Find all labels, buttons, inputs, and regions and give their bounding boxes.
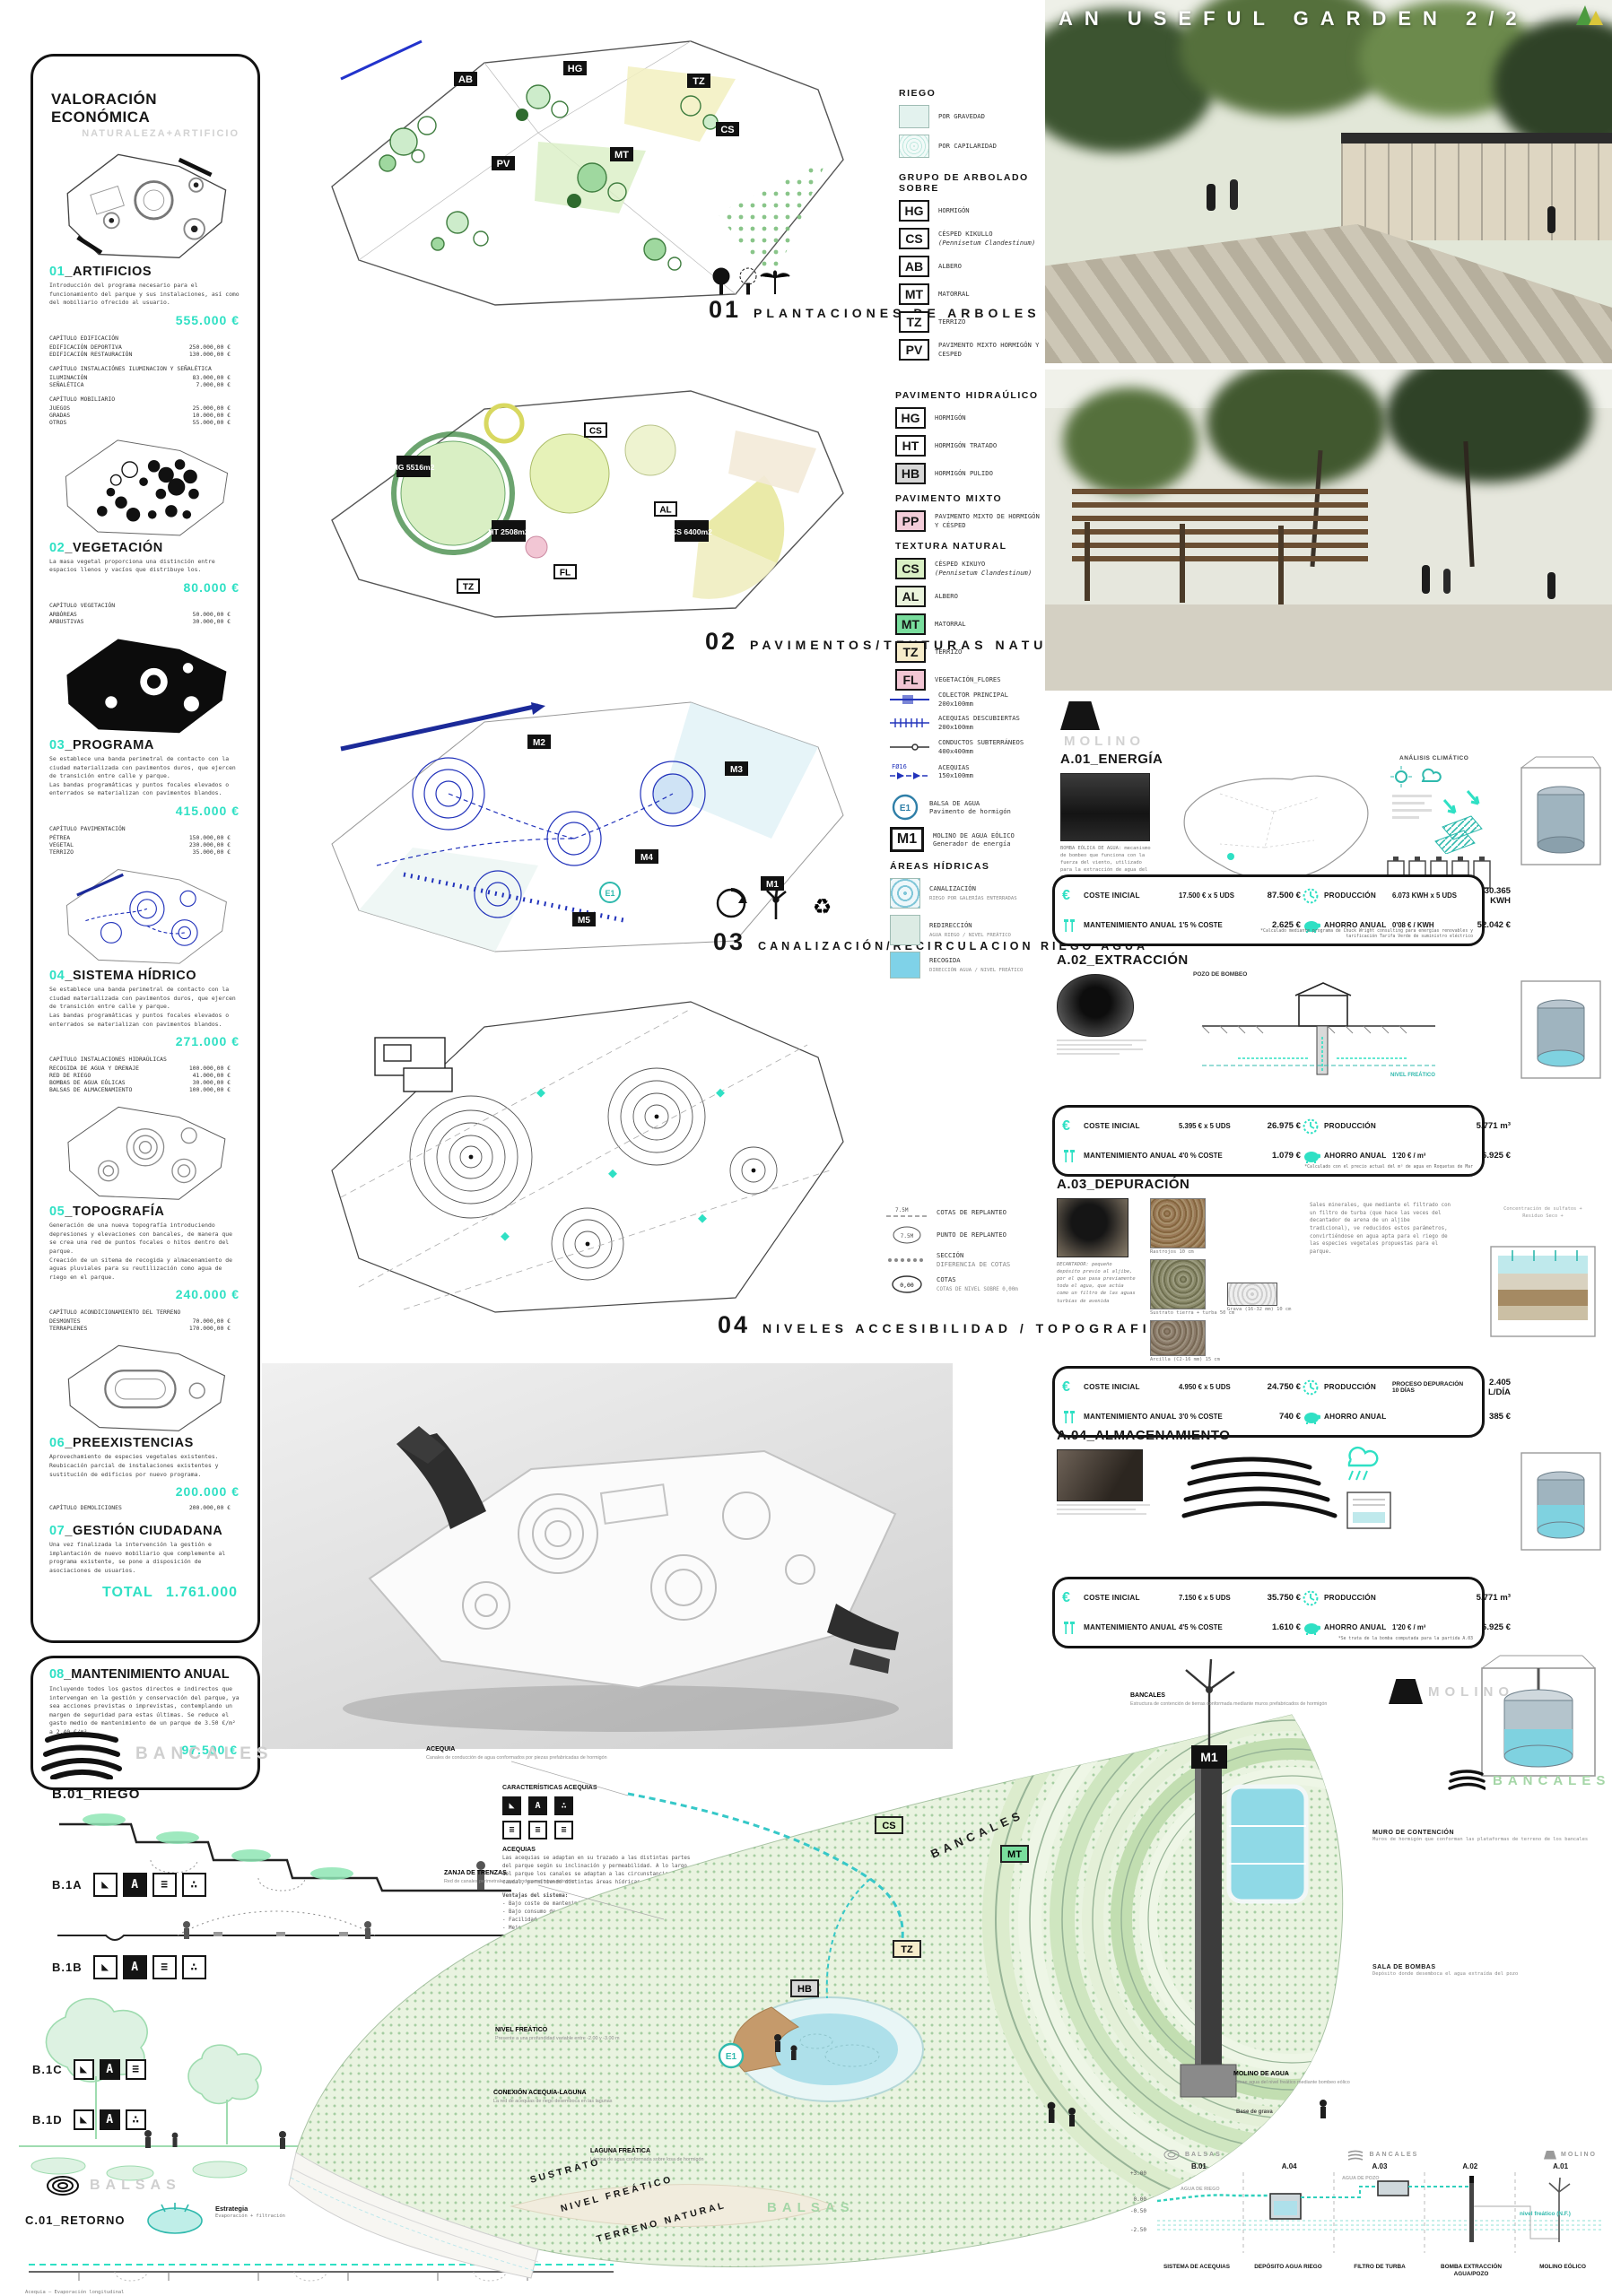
legend-item: COLECTOR PRINCIPAL200x100mm xyxy=(890,691,1074,708)
section-title: 08_MANTENIMIENTO ANUAL xyxy=(49,1667,241,1682)
savings-pig-icon xyxy=(1303,1410,1320,1424)
balsas-icon xyxy=(45,2174,81,2197)
chip-cs: CS xyxy=(899,228,929,249)
legend-title: PAVIMENTO HIDRAÚLICO xyxy=(895,390,1070,401)
section-total: 200.000 € xyxy=(51,1484,240,1499)
b-item-label: B.1C xyxy=(32,2063,63,2076)
callout-desc: Red de canales perimetrales que conducen… xyxy=(444,1879,575,1884)
cost-row: EDIFICACIÓN DEPORTIVA250.000,00 € xyxy=(49,344,231,351)
section-pictogram: A xyxy=(100,2059,120,2080)
module-a01-header: A.01_ENERGÍA xyxy=(1060,752,1163,767)
callout-desc: Estructura de contención de tierras conf… xyxy=(1130,1701,1327,1707)
plan-caption: NIVELES ACCESIBILIDAD / TOPOGRAFIA xyxy=(762,1321,1164,1335)
plan-tag: AB xyxy=(458,74,473,85)
callout-title: MOLINO DE AGUA xyxy=(1233,2071,1289,2077)
pozo-label: POZO DE BOMBEO xyxy=(1193,971,1247,978)
grand-total: TOTAL1.761.000 xyxy=(53,1585,238,1601)
colector-symbol xyxy=(890,694,929,705)
plan-number: 04 xyxy=(718,1311,750,1339)
section-title: 02_VEGETACIÓN xyxy=(49,541,241,555)
legend-item: CSCÉSPED KIKUYO(Pennisetum Clandestinum) xyxy=(895,558,1070,579)
legend-item: REDIRECCIÓNAGUA RIEGO / NIVEL FREÁTICO xyxy=(890,915,1074,945)
cost-row: EDIFICACIÓN RESTAURACIÓN130.000,00 € xyxy=(49,351,231,358)
water-cycle-schematic: BALSAS BANCALES MOLINO B.01 A.04 A.03 A.… xyxy=(1154,2149,1606,2279)
legend-item: E1BALSA DE AGUAPavimento de hormigón xyxy=(890,794,1074,821)
plan-tag: HG xyxy=(568,64,583,74)
cost-row: ARBÓREAS50.000,00 € xyxy=(49,611,231,618)
savings-pig-icon xyxy=(1303,1149,1320,1163)
swatch-gravedad xyxy=(899,105,929,128)
cost-row: TERRAPLENES170.000,00 € xyxy=(49,1325,231,1332)
climate-solar-icons xyxy=(1389,764,1487,854)
cost-row: PÉTREA150.000,00 € xyxy=(49,834,231,841)
conducto-symbol xyxy=(890,742,929,752)
water-tank-icon xyxy=(1514,755,1608,872)
legend-item: CSCÉSPED KIKULLO(Pennisetum Clandestinum… xyxy=(899,228,1069,249)
spray-pictogram: ∴ xyxy=(182,1955,206,1979)
chip-mt: MT xyxy=(899,283,929,305)
spray-pictogram: ∴ xyxy=(182,1873,206,1897)
section-pictogram: A xyxy=(123,1955,147,1979)
maintenance-tap-icon xyxy=(1062,1620,1076,1636)
schematic-codes: B.01 A.04 A.03 A.02 A.01 xyxy=(1154,2162,1606,2170)
chapter-title: CAPÍTULO ACONDICIONAMIENTO DEL TERRENO xyxy=(49,1309,241,1316)
cost-row: GRADAS10.000,00 € xyxy=(49,412,231,419)
euro-icon: € xyxy=(1062,1379,1082,1396)
a04-cost-table: € COSTE INICIAL 7.150 € x 5 UDS 35.750 €… xyxy=(1052,1577,1485,1648)
balsas-green-label: BALSAS xyxy=(767,2200,855,2215)
legend-riego: RIEGO POR GRAVEDAD POR CAPILARIDAD GRUPO… xyxy=(899,79,1069,367)
chip: TZ xyxy=(463,583,474,593)
cost-row: ARBUSTIVAS30.000,00 € xyxy=(49,618,231,625)
molino-tag-label: MOLINO xyxy=(1064,734,1145,749)
pergola-post xyxy=(1085,522,1090,601)
bancales-header: BANCALES xyxy=(40,1729,274,1779)
filter-tank-section xyxy=(1482,1238,1604,1345)
acequia-long-label: Acequia — Evaporación longitudinal xyxy=(25,2289,124,2296)
soil-sample xyxy=(1150,1320,1206,1356)
flow-label: AGUA DE RIEGO xyxy=(1181,2187,1220,2192)
chip-al: AL xyxy=(895,586,926,607)
balsas-icon xyxy=(1163,2149,1181,2161)
cost-row: RECOGIDA DE AGUA Y DRENAJE100.000,00 € xyxy=(49,1065,231,1072)
section-desc: Una vez finalizada la intervención la ge… xyxy=(49,1541,241,1575)
area-tag: HT 2508m2 xyxy=(488,527,529,536)
well-photo xyxy=(1057,974,1134,1037)
swatch-redireccion xyxy=(890,915,920,945)
legend-title: RIEGO xyxy=(899,88,1069,99)
callout: MURO DE CONTENCIÓN Muros de hormigón que… xyxy=(1372,1830,1597,1843)
level-marks: +3.00 0.00 -0.50 -2.50 xyxy=(1120,2170,1146,2233)
legend-title: PAVIMENTO MIXTO xyxy=(895,493,1070,504)
person-silhouette xyxy=(1230,179,1238,210)
maintenance-tap-icon xyxy=(1062,1148,1076,1164)
callout: SALA DE BOMBAS Depósito donde desemboca … xyxy=(1372,1964,1597,1978)
area-tag: HG 5516m2 xyxy=(393,463,435,472)
a03-desc: Sales minerales, que mediante el filtrad… xyxy=(1310,1202,1453,1257)
plan-tag: CS xyxy=(720,125,734,135)
chip-tz: TZ xyxy=(899,311,929,333)
a02-cost-table: € COSTE INICIAL 5.395 € x 5 UDS 26.975 €… xyxy=(1052,1105,1485,1177)
legend-title: ÁREAS HÍDRICAS xyxy=(890,861,1074,872)
bancales-icon xyxy=(40,1729,123,1779)
cost-row: CAPÍTULO DEMOLICIONES200.000,00 € xyxy=(49,1504,231,1511)
plan-tag: TZ xyxy=(693,76,705,87)
cotas-replanteo-symbol: 7.5M xyxy=(886,1206,928,1219)
plan-number: 02 xyxy=(705,628,737,656)
section-total: 80.000 € xyxy=(51,580,240,595)
decantador-quote: DECANTADOR: pequeño depósito previo al a… xyxy=(1057,1261,1137,1305)
acequia-symbol: FØ16 xyxy=(890,761,929,781)
b1d-row: B.1D ◣ A ∴ xyxy=(32,2109,146,2130)
callout-title: CONEXIÓN ACEQUIA-LAGUNA xyxy=(493,2088,587,2096)
riego-header: B.01_RIEGO xyxy=(52,1787,140,1802)
svg-text:E1: E1 xyxy=(900,804,911,813)
chip-pv: PV xyxy=(899,339,929,361)
nivel-freatico-label: nivel freático (N.F.) xyxy=(1520,2211,1571,2217)
cost-row: JUEGOS25.000,00 € xyxy=(49,404,231,412)
punto-replanteo-symbol: 7.5M xyxy=(886,1225,928,1245)
chip-cs: CS xyxy=(895,558,926,579)
legend-item: CONDUCTOS SUBTERRÁNEOS400x400mm xyxy=(890,738,1074,755)
plan-thumb-preexistencias xyxy=(50,1337,240,1434)
bancales-icon xyxy=(1346,2150,1364,2161)
maintenance-tap-icon xyxy=(1062,918,1076,934)
section-total: 240.000 € xyxy=(51,1287,240,1301)
acequia-descubierta-symbol xyxy=(890,717,929,728)
section-desc: La masa vegetal proporciona una distinci… xyxy=(49,558,241,575)
svg-text:FØ16: FØ16 xyxy=(892,763,907,770)
pergola xyxy=(1072,484,1368,561)
bancales-right-label: BANCALES xyxy=(1448,1769,1610,1792)
callout-desc: Extrae agua del nivel freático mediante … xyxy=(1233,2080,1350,2085)
nivel-freatico-label: NIVEL FREÁTICO xyxy=(1390,1072,1435,1078)
legend-item: 0,00COTASCOTAS DE NIVEL SOBRE 0,00m xyxy=(886,1274,1061,1294)
chip-hb: HB xyxy=(895,463,926,484)
chip: CS xyxy=(589,427,602,437)
section-title: 04_SISTEMA HÍDRICO xyxy=(49,969,241,983)
cost-row: VEGETAL230.000,00 € xyxy=(49,841,231,848)
slope-pictogram: ◣ xyxy=(74,2059,94,2080)
pavilion-building xyxy=(1341,133,1612,240)
plan-02-drawing: HG 5516m2 HT 2508m2 CS 6400m2 CS AL TZ F… xyxy=(269,377,861,628)
section-total: 271.000 € xyxy=(51,1034,240,1048)
euro-icon: € xyxy=(1062,1118,1082,1135)
section-total: 415.000 € xyxy=(51,804,240,818)
legend-item: SECCIÓNDIFERENCIA DE COTAS xyxy=(886,1251,1061,1268)
board-title: AN USEFUL GARDEN 2/2 xyxy=(1059,7,1597,30)
swatch-canalizacion xyxy=(890,878,920,909)
cost-row: DESMONTES70.000,00 € xyxy=(49,1318,231,1325)
valuation-panel: VALORACIÓN ECONÓMICA NATURALEZA+ARTIFICI… xyxy=(30,54,260,1643)
layers-pictogram: ≡ xyxy=(126,2059,146,2080)
legend-item: 7.5MCOTAS DE REPLANTEO xyxy=(886,1206,1061,1219)
m1-tag: M1 xyxy=(1200,1750,1218,1764)
plan-04-drawing xyxy=(269,982,861,1327)
chapter-title: CAPÍTULO PAVIMENTACIÓN xyxy=(49,825,241,832)
mt-tag: MT xyxy=(1007,1849,1022,1860)
legend-item: RECOGIDADIRECCIÓN AGUA / NIVEL FREÁTICO xyxy=(890,952,1074,978)
legend-item: PVPAVIMENTO MIXTO HORMIGÓN Y CESPED xyxy=(899,339,1069,361)
tz-tag: TZ xyxy=(901,1944,913,1955)
cs-tag: CS xyxy=(882,1821,895,1831)
euro-icon: € xyxy=(1062,888,1082,904)
cost-row: SEÑALÉTICA7.000,00 € xyxy=(49,381,231,388)
section-desc: Generación de una nueva topografía intro… xyxy=(49,1222,241,1282)
storage-tank-3d xyxy=(1471,1650,1606,1785)
person-silhouette xyxy=(1443,569,1451,594)
section-title: 06_PREEXISTENCIAS xyxy=(49,1436,241,1450)
valuation-subtitle: NATURALEZA+ARTIFICIO xyxy=(51,128,240,139)
chip-ab: AB xyxy=(899,256,929,277)
section-title: 03_PROGRAMA xyxy=(49,738,241,752)
water-tank-icon xyxy=(1514,1440,1608,1557)
area-tag: CS 6400m2 xyxy=(671,527,712,536)
hydro-icons: ♻ xyxy=(713,883,848,923)
chip-pp: PP xyxy=(895,510,926,532)
a03-decantador: DECANTADOR: pequeño depósito previo al a… xyxy=(1057,1198,1137,1305)
ground xyxy=(1045,604,1612,691)
callout-desc: Lámina de agua conformada sobre losa de … xyxy=(590,2157,703,2162)
molino-icon xyxy=(1389,1679,1423,1704)
callout-title: ZANJA DE TRENZAS xyxy=(444,1870,507,1876)
chip-ht: HT xyxy=(895,435,926,457)
schematic-captions: SISTEMA DE ACEQUIAS DEPÓSITO AGUA RIEGO … xyxy=(1154,2264,1606,2279)
slope-pictogram: ◣ xyxy=(74,2109,94,2130)
render-photo-1 xyxy=(1045,0,1612,363)
balsas-header: BALSAS xyxy=(45,2174,181,2197)
soil-sample xyxy=(1150,1259,1206,1309)
chapter-title: CAPÍTULO EDIFICACIÓN xyxy=(49,335,241,342)
cyclist-silhouette xyxy=(1547,206,1555,233)
person-silhouette xyxy=(1207,184,1216,211)
section-num: 01 xyxy=(49,265,65,279)
cost-row: ILUMINACIÓN83.000,00 € xyxy=(49,374,231,381)
spain-map xyxy=(1166,758,1381,892)
section-title: 05_TOPOGRAFÍA xyxy=(49,1205,241,1219)
cotas-symbol: 0,00 xyxy=(886,1274,928,1294)
cost-row: BOMBAS DE AGUA EÓLICAS30.000,00 € xyxy=(49,1079,231,1086)
water-tank-icon xyxy=(1514,969,1608,1085)
legend-item: HGHORMIGÓN xyxy=(899,200,1069,222)
a01-photo xyxy=(1060,773,1150,841)
legend-item: ABALBERO xyxy=(899,256,1069,277)
seccion-symbol xyxy=(886,1256,928,1265)
legend-item: M1MOLINO DE AGUA EÓLICOGenerador de ener… xyxy=(890,827,1074,852)
bancales-icon xyxy=(1448,1769,1486,1792)
person-silhouette xyxy=(1547,572,1555,599)
b1b-row: B.1B ◣ A ≡ ∴ xyxy=(52,1955,206,1979)
legend-item: 7.5MPUNTO DE REPLANTEO xyxy=(886,1225,1061,1245)
hb-tag: HB xyxy=(797,1984,812,1995)
a02-photo-block xyxy=(1057,974,1164,1057)
molino-icon xyxy=(1544,2151,1556,2160)
production-clock-icon xyxy=(1303,888,1319,904)
chip-hg: HG xyxy=(899,200,929,222)
molino-chip: M1 xyxy=(890,827,924,852)
savings-pig-icon xyxy=(1303,1621,1320,1635)
a04-photo-block xyxy=(1057,1449,1155,1518)
svg-text:7.5M: 7.5M xyxy=(901,1233,914,1239)
stone-path xyxy=(1045,224,1612,363)
b-item-label: B.1B xyxy=(52,1961,83,1974)
molino-tag: M2 xyxy=(533,738,545,748)
callout-title: NIVEL FREÁTICO xyxy=(495,2025,548,2033)
a03-params: Concentración de sulfatos + Residuo Seco… xyxy=(1480,1205,1606,1220)
section-desc: Se establece una banda perimetral de con… xyxy=(49,755,241,798)
chip-mt: MT xyxy=(895,613,926,635)
person-silhouette xyxy=(1422,565,1430,594)
legend-item: TZTERRIZO xyxy=(895,641,1070,663)
cost-row: OTROS55.000,00 € xyxy=(49,419,231,426)
legend-item: TZTERRIZO xyxy=(899,311,1069,333)
palm-mass xyxy=(1386,370,1592,483)
b-item-label: B.1D xyxy=(32,2113,63,2126)
grava-block: Grava (16-32 mm) 10 cm xyxy=(1227,1283,1291,1313)
schematic-top-labels: BALSAS BANCALES MOLINO xyxy=(1154,2149,1606,2161)
chip-tz: TZ xyxy=(895,641,926,663)
legend-item: HBHORMIGÓN PULIDO xyxy=(895,463,1070,484)
chapter-title: CAPÍTULO VEGETACIÓN xyxy=(49,602,241,609)
chapter-title: CAPÍTULO INSTALACIONES HIDRAÚLICAS xyxy=(49,1056,241,1063)
balsas-label: BALSAS xyxy=(90,2178,181,2194)
callout-desc: La red de acequias de riego desemboca en… xyxy=(493,2099,613,2104)
svg-text:0,00: 0,00 xyxy=(900,1282,914,1289)
section-desc: Se establece una banda perimetral de con… xyxy=(49,986,241,1029)
palm-mass xyxy=(1063,387,1198,495)
chapter-title: CAPÍTULO MOBILIARIO xyxy=(49,396,241,403)
retorno-blob xyxy=(144,2199,206,2239)
legend-pavimentos: PAVIMENTO HIDRAÚLICO HGHORMIGÓN HTHORMIG… xyxy=(895,381,1070,697)
maintenance-tap-icon xyxy=(1062,1409,1076,1425)
cost-row: TERRIZO35.000,00 € xyxy=(49,848,231,856)
pergola-post xyxy=(1278,526,1284,604)
a04-diagram xyxy=(1175,1440,1399,1557)
retorno-header: C.01_RETORNO xyxy=(25,2213,125,2227)
molino-tag: M4 xyxy=(640,853,653,863)
legend-item: ACEQUIAS DESCUBIERTAS200x100mm xyxy=(890,714,1074,731)
chip: AL xyxy=(659,506,671,516)
callout-title: BANCALES xyxy=(1130,1692,1165,1699)
section-title: 07_GESTIÓN CIUDADANA xyxy=(49,1524,241,1538)
callout-desc: Presente a una profundidad variable entr… xyxy=(495,2036,620,2041)
swatch-capilaridad xyxy=(899,135,929,158)
plan-number: 03 xyxy=(713,928,745,956)
b-item-label: B.1A xyxy=(52,1878,83,1892)
decantador-photo xyxy=(1057,1198,1128,1257)
table-footnote: *Se trata de la bomba computada para la … xyxy=(1249,1637,1473,1643)
legend-item: FØ16ACEQUIAS150x100mm xyxy=(890,761,1074,781)
euro-icon: € xyxy=(1062,1590,1082,1606)
legend-item: MTMATORRAL xyxy=(899,283,1069,305)
extraction-section-drawing: POZO DE BOMBEO NIVEL FREÁTICO xyxy=(1184,965,1453,1091)
flow-label: AGUA DE POZO xyxy=(1342,2176,1379,2181)
plan-tag: PV xyxy=(497,159,510,170)
swatch-recogida xyxy=(890,952,920,978)
plan-04-caption: 04 NIVELES ACCESIBILIDAD / TOPOGRAFIA xyxy=(718,1311,1164,1339)
slope-pictogram: ◣ xyxy=(93,1873,118,1897)
legend-item: CANALIZACIÓNRIEGO POR GALERÍAS ENTERRADA… xyxy=(890,878,1074,909)
render-photo-2 xyxy=(1045,370,1612,691)
pergola-post xyxy=(1180,524,1185,603)
module-a03-header: A.03_DEPURACIÓN xyxy=(1057,1177,1189,1192)
a01-climate-title: ANÁLISIS CLIMÁTICO xyxy=(1399,755,1468,761)
svg-text:7.5M: 7.5M xyxy=(895,1207,909,1213)
plan-thumb-topografia xyxy=(50,1099,240,1203)
spray-pictogram: ∴ xyxy=(126,2109,146,2130)
soil-sample xyxy=(1150,1198,1206,1248)
molino-tag: M5 xyxy=(578,916,590,926)
balsa-icon: E1 xyxy=(890,794,920,821)
balsa-photo xyxy=(1057,1449,1143,1501)
molino-tag: M3 xyxy=(730,765,743,775)
legend-item: PPPAVIMENTO MIXTO DE HORMIGÓN Y CÉSPED xyxy=(895,510,1070,532)
plan-number: 01 xyxy=(709,296,741,324)
a01-cost-table: € COSTE INICIAL 17.500 € x 5 UDS 87.500 … xyxy=(1052,874,1485,946)
legend-item: MTMATORRAL xyxy=(895,613,1070,635)
chapter-title: CAPÍTULO INSTALACIÓNES ILUMINACION Y SEÑ… xyxy=(49,365,241,372)
schematic-drawing: AGUA DE RIEGO AGUA DE POZO nivel freátic… xyxy=(1154,2170,1606,2257)
b1c-row: B.1C ◣ A ≡ xyxy=(32,2059,146,2080)
legend-topografia: 7.5MCOTAS DE REPLANTEO 7.5MPUNTO DE REPL… xyxy=(886,1200,1061,1300)
section-desc: Aprovechamiento de especies vegetales ex… xyxy=(49,1453,241,1479)
section-pictogram: A xyxy=(100,2109,120,2130)
grava-sample xyxy=(1227,1283,1277,1306)
callout-title: ACEQUIA xyxy=(426,1746,455,1752)
legend-title: TEXTURA NATURAL xyxy=(895,541,1070,552)
palm-mass xyxy=(1207,370,1386,486)
layers-pictogram: ≡ xyxy=(152,1873,177,1897)
callout-title: LAGUNA FREÁTICA xyxy=(590,2146,650,2154)
section-desc: Introducción del programa necesario para… xyxy=(49,282,241,308)
plan-thumb-vegetacion xyxy=(50,431,240,539)
valuation-title: VALORACIÓN ECONÓMICA xyxy=(51,91,240,126)
cost-row: RED DE RIEGO41.000,00 € xyxy=(49,1072,231,1079)
callout-title: Base de grava xyxy=(1236,2109,1273,2115)
legend-item: HGHORMIGÓN xyxy=(895,407,1070,429)
layers-pictogram: ≡ xyxy=(152,1955,177,1979)
plan-thumb-artificios xyxy=(50,144,240,263)
callout-desc: Canales de conducción de agua conformado… xyxy=(426,1755,607,1761)
plan-thumb-programa xyxy=(50,631,240,736)
legend-item: POR CAPILARIDAD xyxy=(899,135,1069,158)
b1a-row: B.1A ◣ A ≡ ∴ xyxy=(52,1873,206,1897)
production-clock-icon xyxy=(1303,1118,1319,1135)
legend-title: GRUPO DE ARBOLADO SOBRE xyxy=(899,172,1069,194)
legend-canalizacion: COLECTOR PRINCIPAL200x100mm ACEQUIAS DES… xyxy=(890,684,1074,985)
chip: FL xyxy=(560,569,571,578)
slope-pictogram: ◣ xyxy=(93,1955,118,1979)
production-clock-icon xyxy=(1303,1379,1319,1396)
balsa-tag: E1 xyxy=(605,889,614,898)
e1-tag: E1 xyxy=(726,2052,737,2062)
plan-thumb-hidrico xyxy=(50,861,240,967)
table-footnote: *Calculado con el precio actual del m³ d… xyxy=(1249,1165,1473,1171)
recycle-icon: ♻ xyxy=(814,887,831,921)
production-clock-icon xyxy=(1303,1590,1319,1606)
section-total: 555.000 € xyxy=(51,313,240,327)
section-title: 01_ARTIFICIOS xyxy=(49,265,241,279)
cost-row: BALSAS DE ALMACENAMIENTO100.000,00 € xyxy=(49,1086,231,1093)
a03-cost-table: € COSTE INICIAL 4.950 € x 5 UDS 24.750 €… xyxy=(1052,1366,1485,1438)
tree-icons xyxy=(709,265,807,296)
section-pictogram: A xyxy=(123,1873,147,1897)
a03-soil-column: Rastrojos 10 cm Sustrato tierra + turba … xyxy=(1150,1198,1234,1363)
legend-item: POR GRAVEDAD xyxy=(899,105,1069,128)
legend-item: HTHORMIGÓN TRATADO xyxy=(895,435,1070,457)
legend-item: ALALBERO xyxy=(895,586,1070,607)
table-footnote: *Calculado mediante programa de Chuck Wr… xyxy=(1249,929,1473,941)
